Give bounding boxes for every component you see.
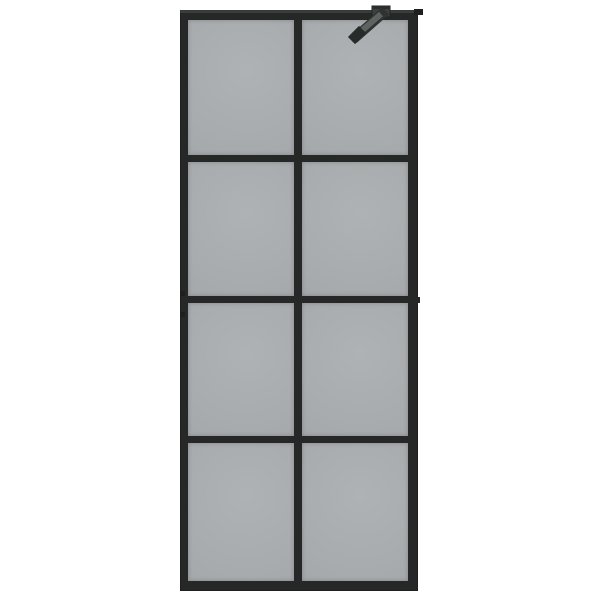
glass-pane [302,162,408,296]
glass-pane [188,20,294,155]
frame-grid [188,20,408,581]
glass-pane [188,303,294,436]
right-connector-nub [416,297,420,303]
wall-profile-notch [181,312,185,317]
wall-profile-notch [181,291,185,296]
glass-pane [302,443,408,581]
glass-pane [188,162,294,296]
support-arm-bracket [340,0,420,50]
shower-screen-panel [180,10,418,591]
glass-pane [302,303,408,436]
product-photo-stage [0,0,600,600]
glass-pane [188,443,294,581]
support-arm-tip [355,33,359,37]
